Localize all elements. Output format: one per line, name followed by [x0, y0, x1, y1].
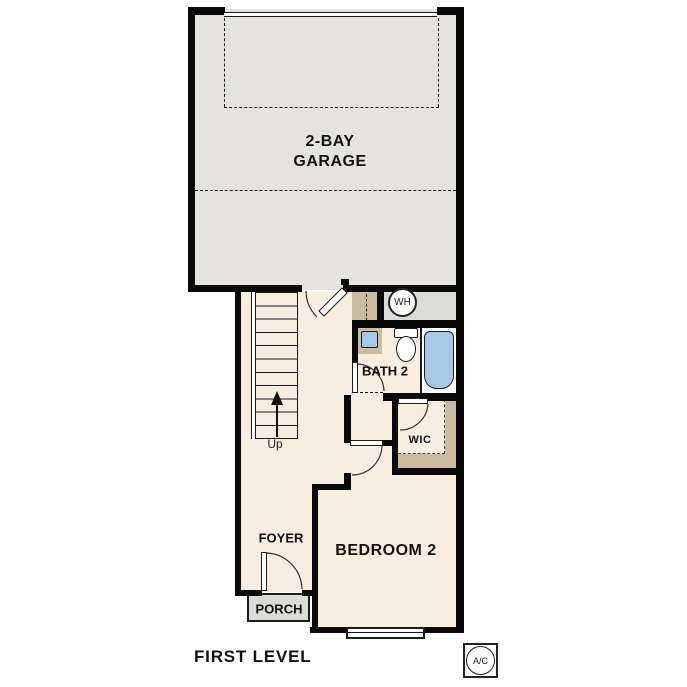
wall-foyer-bottom-right	[302, 590, 315, 596]
sink-icon	[361, 331, 378, 348]
stairs-up-label: Up	[267, 437, 282, 451]
garage-label: 2-BAY GARAGE	[293, 132, 366, 172]
ac-unit-icon: A/C	[466, 646, 495, 675]
wall-wic-left	[392, 395, 398, 470]
wall-stub	[341, 279, 349, 285]
wall-garage-bottom-left	[188, 285, 302, 292]
porch-label: PORCH	[256, 602, 303, 617]
up-arrow-icon	[271, 391, 283, 405]
garage-label-line2: GARAGE	[293, 152, 366, 172]
utility-opening-dashed	[366, 294, 367, 321]
ac-unit-label: A/C	[473, 656, 488, 666]
garage-door-clearance-left	[224, 18, 225, 107]
wall-foyer-bottom-left	[235, 590, 262, 596]
bedroom-floor-lower	[312, 592, 459, 630]
water-heater-icon: WH	[388, 288, 417, 317]
bath-label: BATH 2	[362, 364, 408, 379]
wall-wic-bottom	[392, 468, 464, 475]
wall-lower-left	[235, 292, 241, 592]
wall-bath-left	[352, 322, 358, 363]
wall-bedroom-left	[312, 490, 318, 633]
bedroom-door	[350, 440, 383, 446]
wall-wh-bottom	[352, 320, 464, 328]
garage-door-clearance-right	[438, 18, 439, 107]
bath-door	[352, 362, 358, 393]
ac-unit-box: A/C	[463, 643, 498, 678]
front-door	[261, 552, 267, 591]
bedroom-window	[346, 627, 425, 639]
garage-door-clearance-bottom	[224, 107, 439, 108]
foyer-label: FOYER	[259, 531, 304, 546]
bath-door-threshold	[355, 392, 383, 393]
garage-mid-dashed-line	[195, 190, 456, 191]
hall-utility-block	[352, 292, 378, 322]
bathtub-icon	[424, 331, 454, 389]
wall-wh-left	[377, 292, 384, 320]
garage-label-line1: 2-BAY	[293, 132, 366, 152]
wall-garage-left	[188, 7, 195, 292]
bedroom-label: BEDROOM 2	[335, 542, 436, 560]
wic-label: WIC	[409, 434, 432, 446]
toilet-bowl-icon	[396, 336, 416, 362]
wic-door	[398, 398, 428, 404]
garage-door	[224, 12, 437, 17]
up-arrow-tail	[276, 403, 278, 437]
wic-opening-dashed	[396, 402, 397, 432]
page-title: FIRST LEVEL	[194, 647, 311, 667]
water-heater-label: WH	[394, 297, 411, 308]
floor-plan: WH A/C 2-BAY GARAGE BATH 2 WIC BEDROOM 2…	[0, 0, 687, 687]
wall-hall-vertical	[344, 395, 351, 443]
